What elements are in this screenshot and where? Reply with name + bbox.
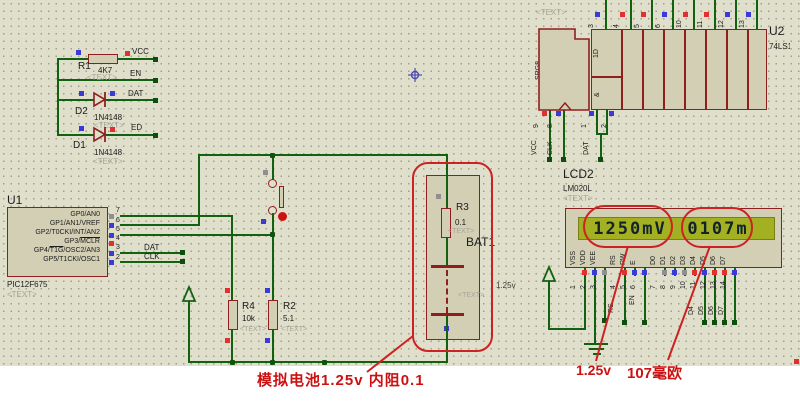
d1-value: 1N4148	[94, 148, 122, 157]
selection-square	[692, 270, 697, 275]
u1-pin-label: GP3/MCLR	[12, 238, 100, 246]
voltage-note: 1.25v	[576, 362, 611, 378]
wire[interactable]	[563, 110, 565, 159]
wire[interactable]	[272, 213, 274, 300]
net-label-vcc: VCC	[132, 47, 149, 56]
lcd-pin-label: E	[630, 260, 638, 265]
lcd-pin-label: D7	[720, 256, 728, 265]
wire[interactable]	[120, 234, 273, 236]
u2-pin-num: 2	[601, 124, 609, 128]
terminal[interactable]	[180, 259, 185, 264]
wire[interactable]	[584, 268, 586, 329]
u2-clock-fn: C1/->	[558, 87, 566, 104]
selection-square	[642, 270, 647, 275]
lcd-pin-label: VDD	[580, 250, 588, 265]
lcd-part: LM020L	[563, 184, 592, 193]
u1-pin-label: GP2/T0CKI/INT/AN2	[12, 229, 100, 237]
lcd-pin-label: RS	[610, 255, 618, 265]
terminal[interactable]	[153, 133, 158, 138]
u2-pin-num: 6	[655, 24, 663, 28]
lcd-pin-label: VEE	[590, 251, 598, 265]
wire[interactable]	[198, 154, 448, 156]
lcd-pin-label: D1	[660, 256, 668, 265]
push-button[interactable]	[279, 186, 284, 208]
selection-square	[704, 12, 709, 17]
lcd-pin-num: 6	[630, 285, 638, 289]
wire[interactable]	[120, 224, 200, 226]
wire[interactable]	[231, 330, 233, 363]
u2-pin-num: 8	[547, 124, 555, 128]
terminal[interactable]	[722, 320, 727, 325]
selection-square	[110, 127, 115, 132]
lcd-pin-label: D5	[700, 256, 708, 265]
r4-text-placeholder: <TEXT>	[240, 326, 266, 334]
terminal[interactable]	[732, 320, 737, 325]
lcd-pin-num: 13	[710, 281, 718, 289]
selection-square	[556, 111, 561, 116]
lcd-pin-label: D6	[710, 256, 718, 265]
wire[interactable]	[606, 110, 608, 135]
wire[interactable]	[756, 0, 758, 29]
wire[interactable]	[57, 99, 94, 101]
lcd-pin-label: D3	[680, 256, 688, 265]
net-label-ed: ED	[131, 123, 142, 132]
wire[interactable]	[57, 134, 94, 136]
u2-srg8: SRG8	[535, 61, 543, 80]
wire[interactable]	[118, 58, 155, 60]
lcd-pin-num: 3	[590, 285, 598, 289]
u2-pin-num: 13	[739, 20, 747, 28]
u1-pin-num: 3	[116, 244, 120, 252]
u2-divider	[591, 76, 622, 78]
selection-square	[109, 214, 114, 219]
r2-ref: R2	[283, 301, 296, 312]
ground-bar	[584, 343, 608, 345]
selection-square	[225, 338, 230, 343]
d2-ref: D2	[75, 106, 88, 117]
u1-pin-num: 7	[116, 207, 120, 215]
resistor-r2[interactable]	[268, 300, 278, 330]
wire[interactable]	[106, 134, 155, 136]
wire[interactable]	[735, 0, 737, 29]
selection-square	[265, 338, 270, 343]
terminal[interactable]	[598, 157, 603, 162]
wire[interactable]	[651, 0, 653, 29]
selection-square	[732, 270, 737, 275]
r4-value: 10k	[242, 314, 255, 323]
lcd-pin-num: 12	[700, 281, 708, 289]
terminal[interactable]	[622, 320, 627, 325]
selection-square	[109, 233, 114, 238]
u2-divider	[747, 29, 749, 110]
u1-pin-label: GP5/T1CKI/OSC1	[12, 256, 100, 264]
u1-pin-label: GP0/AN0	[12, 211, 100, 219]
u2-reset: R	[540, 101, 548, 106]
selection-square	[662, 270, 667, 275]
battery-highlight-box	[412, 162, 493, 352]
r2-value: 5.1	[283, 314, 294, 323]
lcd-pin-label: D4	[690, 256, 698, 265]
u2-pin-num: 5	[634, 24, 642, 28]
selection-square	[641, 12, 646, 17]
terminal[interactable]	[602, 318, 607, 323]
u2-pin-num: 3	[588, 24, 596, 28]
wire[interactable]	[605, 0, 607, 29]
lcd-pin-num: 9	[670, 285, 678, 289]
u2-divider	[663, 29, 665, 110]
wire[interactable]	[57, 58, 88, 60]
selection-square	[109, 241, 114, 246]
selection-square	[683, 12, 688, 17]
selection-square	[110, 91, 115, 96]
ground-bar	[593, 353, 601, 355]
lcd-pin-num: 14	[720, 281, 728, 289]
u2-pin-num: 9	[533, 124, 541, 128]
wire[interactable]	[600, 133, 602, 159]
lcd-pin-num: 4	[610, 285, 618, 289]
button-contact[interactable]	[268, 179, 277, 188]
d1-ref: D1	[73, 140, 86, 151]
wire[interactable]	[672, 0, 674, 29]
lcd-pin-num: 11	[690, 282, 698, 289]
selection-square	[746, 12, 751, 17]
u2-pin-num: 4	[613, 24, 621, 28]
terminal[interactable]	[180, 250, 185, 255]
selection-square	[76, 50, 81, 55]
r4-ref: R4	[242, 301, 255, 312]
u1-text-placeholder: <TEXT>	[7, 290, 37, 299]
selection-square	[265, 288, 270, 293]
lcd-pin-label: VSS	[570, 251, 578, 265]
selection-square	[672, 270, 677, 275]
button-red-marker	[278, 212, 287, 221]
wire[interactable]	[188, 301, 190, 363]
selection-square	[609, 111, 614, 116]
u1-pin-label: GP1/AN1/VREF	[12, 220, 100, 228]
selection-square	[682, 270, 687, 275]
junction-dot	[270, 232, 275, 237]
selection-square	[582, 270, 587, 275]
voltage-highlight-oval	[583, 205, 673, 248]
net-label-clk: CLK	[547, 141, 555, 155]
wire[interactable]	[548, 328, 586, 330]
wire[interactable]	[120, 261, 182, 263]
u2-divider	[705, 29, 707, 110]
terminal[interactable]	[712, 320, 717, 325]
u2-part: 74LS164	[769, 42, 790, 51]
lcd-ref: LCD2	[563, 168, 594, 181]
terminal[interactable]	[153, 98, 158, 103]
u2-pin-num: 1	[581, 124, 589, 128]
u2-pin-num: 10	[676, 20, 684, 28]
wire[interactable]	[57, 58, 59, 136]
u1-pin-num: 5	[116, 226, 120, 234]
terminal[interactable]	[702, 320, 707, 325]
u1-ref: U1	[7, 194, 22, 207]
d2-text-placeholder: <TEXT>	[94, 121, 124, 130]
r1-text-placeholder: <TEXT>	[87, 73, 117, 82]
net-label-dat: DAT	[128, 89, 143, 98]
lcd-pin-num: 2	[580, 285, 588, 289]
terminal[interactable]	[153, 78, 158, 83]
selection-square	[725, 12, 730, 17]
r2-text-placeholder: <TEXT>	[281, 326, 307, 334]
terminal[interactable]	[561, 157, 566, 162]
selection-square	[622, 270, 627, 275]
lcd-pin-label: D2	[670, 256, 678, 265]
u2-divider	[684, 29, 686, 110]
battery-note: 模拟电池1.25v 内阻0.1	[257, 369, 425, 390]
selection-square	[602, 270, 607, 275]
net-label-dat: DAT	[144, 243, 159, 252]
r1-ref: R1	[78, 61, 91, 72]
wire[interactable]	[714, 0, 716, 29]
net-label-dat: DAT	[583, 142, 591, 155]
resistance-note: 107毫欧	[627, 362, 682, 383]
wire[interactable]	[644, 268, 646, 322]
wire[interactable]	[231, 215, 233, 300]
wire[interactable]	[120, 215, 233, 217]
resistor-r1[interactable]	[88, 54, 118, 64]
u2-pin-num: 11	[697, 21, 705, 28]
lcd-pin-num: 5	[620, 285, 628, 289]
selection-square	[662, 12, 667, 17]
net-label-d5: D5	[698, 306, 706, 315]
net-label-vcc: VCC	[531, 140, 539, 155]
u2-ref: U2	[769, 25, 784, 38]
selection-square	[592, 270, 597, 275]
net-label-d6: D6	[708, 306, 716, 315]
selection-square	[712, 270, 717, 275]
terminal[interactable]	[153, 57, 158, 62]
wire[interactable]	[604, 268, 606, 320]
wire[interactable]	[272, 330, 274, 363]
selection-square	[109, 251, 114, 256]
lcd-pin-num: 8	[660, 285, 668, 289]
wire[interactable]	[734, 268, 736, 322]
d1-text-placeholder: <TEXT>	[93, 157, 123, 166]
u2-divider	[621, 29, 623, 110]
u2-pin-num: 12	[718, 20, 726, 28]
u2-text-placeholder: <TEXT>	[536, 8, 566, 17]
selection-square	[722, 270, 727, 275]
selection-square	[595, 12, 600, 17]
selection-square	[225, 288, 230, 293]
selection-square	[263, 170, 268, 175]
net-label-clk: CLK	[144, 252, 160, 261]
wire[interactable]	[624, 268, 626, 322]
lcd-pin-num: 1	[570, 285, 578, 289]
junction-dot	[322, 360, 327, 365]
junction-dot	[270, 153, 275, 158]
u2-74ls164[interactable]	[591, 29, 767, 110]
resistor-r4[interactable]	[228, 300, 238, 330]
selection-square	[542, 111, 547, 116]
terminal[interactable]	[547, 157, 552, 162]
net-label-d7: D7	[718, 306, 726, 315]
selection-square	[261, 219, 266, 224]
junction-dot	[230, 360, 235, 365]
lcd-text-placeholder: <TEXT>	[563, 194, 593, 203]
lcd-pin-num: 7	[650, 285, 658, 289]
selection-square	[125, 51, 130, 56]
u2-divider	[726, 29, 728, 110]
wire[interactable]	[188, 361, 448, 363]
selection-square	[620, 12, 625, 17]
net-label-rs: RS	[608, 303, 616, 313]
net-label-en: EN	[629, 295, 637, 305]
wire[interactable]	[630, 0, 632, 29]
u1-pin-num: 4	[116, 235, 120, 243]
selection-square	[79, 91, 84, 96]
wire[interactable]	[106, 99, 155, 101]
terminal[interactable]	[642, 320, 647, 325]
wire[interactable]	[693, 0, 695, 29]
u2-1d: 1D	[593, 49, 601, 58]
u2-divider	[642, 29, 644, 110]
selection-square	[109, 260, 114, 265]
lcd-pin-label: D0	[650, 256, 658, 265]
u1-pin-label: GP4/T1G/OSC2/AN3	[12, 247, 100, 255]
bat1-voltage: 1.25v	[496, 281, 516, 290]
wire[interactable]	[198, 154, 200, 226]
resistance-highlight-oval	[681, 207, 753, 248]
schematic-window: R1 4K7 <TEXT> VCC EN DAT D2 1N4148 <TEXT…	[0, 0, 800, 403]
ground-bar	[589, 348, 604, 350]
selection-square	[794, 359, 799, 364]
lcd-pin-label: RW	[620, 253, 628, 265]
net-label-en: EN	[130, 69, 141, 78]
selection-square	[702, 270, 707, 275]
selection-square	[589, 111, 594, 116]
selection-square	[632, 270, 637, 275]
wire[interactable]	[594, 268, 596, 343]
selection-square	[109, 223, 114, 228]
u2-and: &	[594, 92, 602, 97]
net-label-d4: D4	[688, 306, 696, 315]
u1-part: PIC12F675	[7, 280, 47, 289]
lcd-pin-num: 10	[680, 281, 688, 289]
wire[interactable]	[596, 110, 598, 135]
wire[interactable]	[548, 281, 550, 330]
wire[interactable]	[596, 133, 608, 135]
selection-square	[79, 126, 84, 131]
schematic-canvas[interactable]: R1 4K7 <TEXT> VCC EN DAT D2 1N4148 <TEXT…	[0, 0, 800, 366]
junction-dot	[270, 360, 275, 365]
